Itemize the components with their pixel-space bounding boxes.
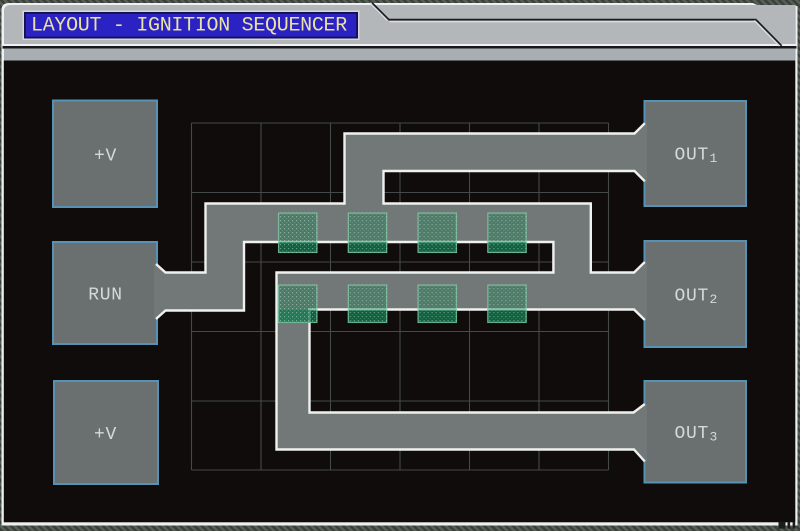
svg-text:RUN: RUN [88, 286, 123, 306]
svg-text:LAYOUT - IGNITION SEQUENCER: LAYOUT - IGNITION SEQUENCER [31, 15, 347, 38]
svg-text:+V: +V [94, 425, 117, 445]
svg-text:+V: +V [94, 147, 117, 167]
